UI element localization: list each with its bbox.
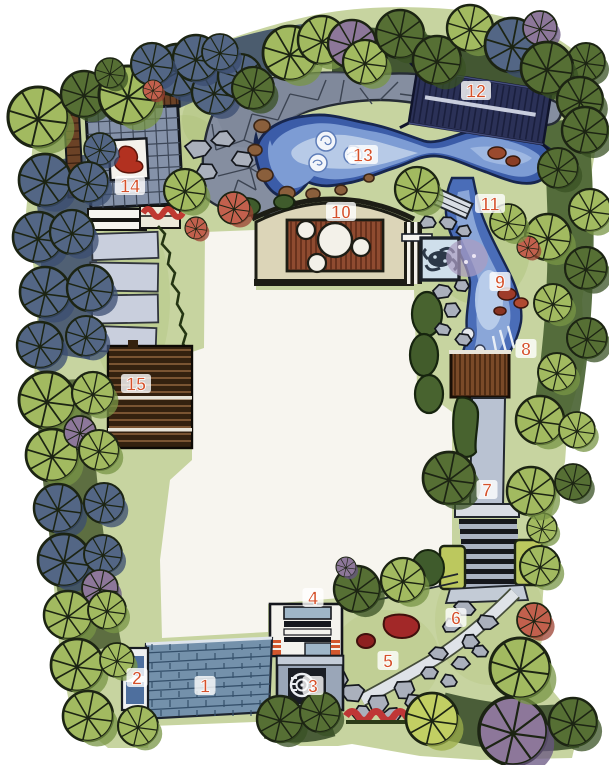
svg-text:5: 5 [383, 652, 393, 672]
svg-text:1: 1 [200, 677, 210, 697]
svg-text:6: 6 [451, 609, 461, 629]
svg-text:7: 7 [482, 481, 492, 501]
svg-text:3: 3 [308, 677, 318, 697]
svg-text:4: 4 [308, 589, 318, 609]
svg-text:14: 14 [120, 177, 140, 197]
svg-text:8: 8 [521, 340, 531, 360]
svg-text:10: 10 [331, 203, 351, 223]
svg-text:15: 15 [126, 375, 146, 395]
svg-text:11: 11 [480, 195, 499, 215]
svg-text:12: 12 [466, 82, 486, 102]
svg-text:9: 9 [495, 273, 505, 293]
svg-text:2: 2 [132, 669, 142, 689]
svg-text:13: 13 [353, 146, 373, 166]
